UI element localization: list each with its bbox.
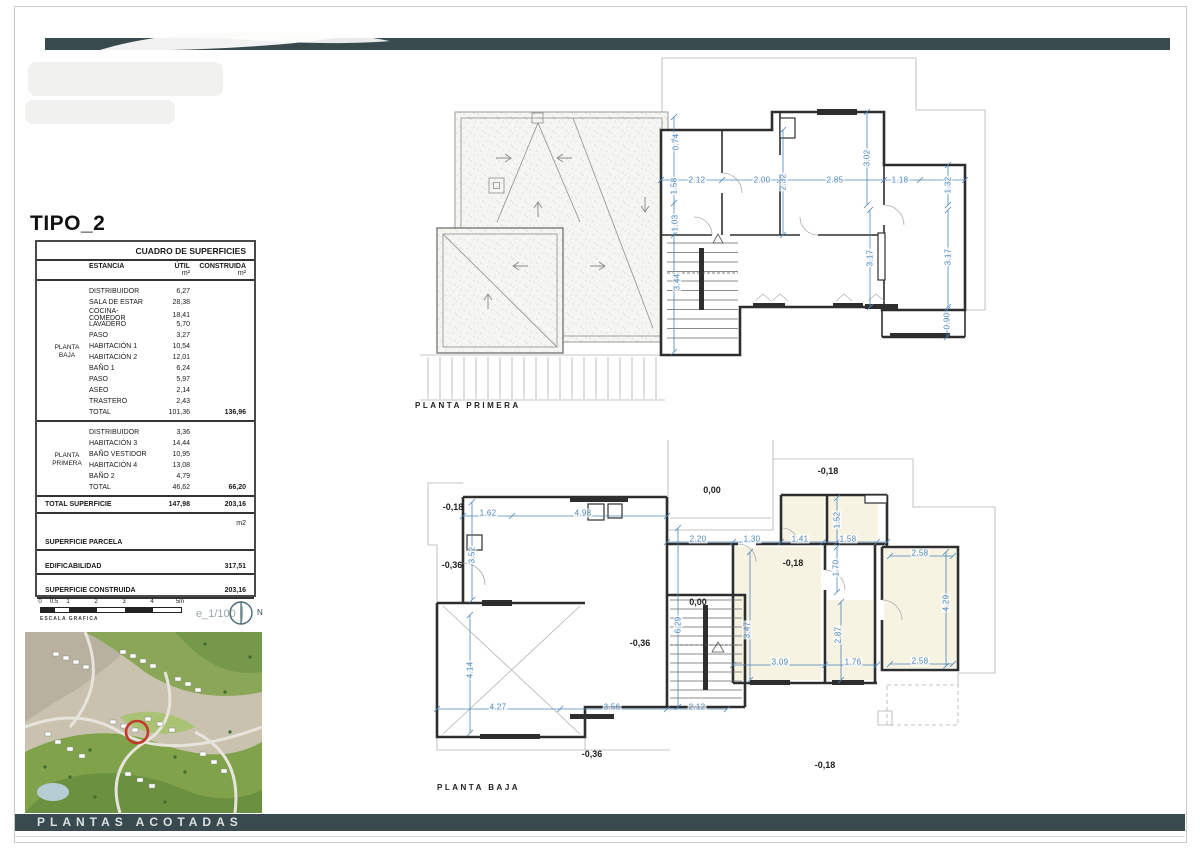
- north-arrow-icon: [228, 600, 254, 626]
- footer-bar: PLANTAS ACOTADAS: [15, 814, 1185, 831]
- footer-title: PLANTAS ACOTADAS: [37, 814, 243, 831]
- dimension-label: 1.03: [671, 214, 680, 233]
- level-label: -0,18: [783, 558, 804, 568]
- compass-icon: N: [228, 600, 272, 628]
- table-total-row: TOTAL46,6266,20: [89, 482, 246, 493]
- total-superficie-label: TOTAL SUPERFICIE: [45, 501, 150, 508]
- table-group: PLANTAPRIMERADISTRIBUIDOR3,36HABITACIÓN …: [37, 422, 254, 497]
- level-label: -0,36: [582, 749, 603, 759]
- dimension-label: 2.58: [911, 657, 930, 666]
- group-name: PLANTAPRIMERA: [45, 452, 89, 468]
- level-label: -0,18: [443, 502, 464, 512]
- dimension-label: 3.47: [743, 621, 752, 640]
- table-row: LAVADERO5,70: [89, 319, 246, 330]
- level-label: -0,18: [818, 466, 839, 476]
- top-accent-bar: [45, 30, 1170, 56]
- site-map-image: [25, 632, 262, 813]
- drawing-sheet: TIPO_2 CUADRO DE SUPERFICIES ESTANCIA ÚT…: [0, 0, 1200, 848]
- level-label: 0,00: [689, 597, 707, 607]
- dimension-label: 2.32: [779, 173, 788, 192]
- total-superficie-row: TOTAL SUPERFICIE 147,98 203,16: [37, 497, 254, 514]
- table-row: PASO3,27: [89, 330, 246, 341]
- dimension-label: 4.27: [489, 703, 508, 712]
- level-label: -0,36: [630, 638, 651, 648]
- dimension-label: 2.20: [689, 535, 708, 544]
- col-util: ÚTIL: [150, 263, 190, 270]
- dimension-label: 1.32: [944, 176, 953, 195]
- table-row: DISTRIBUIDOR6,27: [89, 286, 246, 297]
- dimension-label: 1.58: [670, 177, 679, 196]
- col-estancia: ESTANCIA: [89, 263, 150, 277]
- accent-bar-graphic: [45, 30, 1170, 56]
- scale-tick-label: 0: [38, 599, 41, 605]
- dimension-label: 3.44: [673, 273, 682, 292]
- table-row: SALA DE ESTAR28,38: [89, 297, 246, 308]
- dimension-label: 1.52: [833, 511, 842, 530]
- col-util-unit: m²: [150, 270, 190, 277]
- dimension-label: 1.30: [743, 535, 762, 544]
- surfaces-table-body: PLANTABAJADISTRIBUIDOR6,27SALA DE ESTAR2…: [37, 281, 254, 497]
- dimension-label: 1.70: [832, 559, 841, 578]
- table-title: CUADRO DE SUPERFICIES: [37, 242, 254, 259]
- table-group: PLANTABAJADISTRIBUIDOR6,27SALA DE ESTAR2…: [37, 281, 254, 422]
- primera-annotations: 0.741.581.033.442.122.002.322.853.021.18…: [420, 55, 1000, 415]
- plan-label-primera: PLANTA PRIMERA: [415, 401, 521, 410]
- dimension-label: 2.12: [688, 703, 707, 712]
- dimension-label: 1.58: [839, 535, 858, 544]
- plan-label-baja: PLANTA BAJA: [437, 783, 520, 792]
- table-row: ASEO2,14: [89, 385, 246, 396]
- scale-tick-label: 0.5: [50, 599, 58, 605]
- scale-tick-label: 5m: [176, 599, 184, 605]
- scale-bar-graphic: [40, 607, 182, 613]
- table-row: PASO5,97: [89, 374, 246, 385]
- table-total-row: TOTAL101,36136,96: [89, 407, 246, 418]
- level-label: -0,18: [815, 760, 836, 770]
- table-row: BAÑO 16,24: [89, 363, 246, 374]
- dimension-label: 4.98: [574, 509, 593, 518]
- sheet-title: TIPO_2: [30, 212, 105, 236]
- group-name: PLANTABAJA: [45, 344, 89, 360]
- north-label: N: [257, 608, 263, 617]
- table-row: BAÑO 24,79: [89, 471, 246, 482]
- col-construida-unit: m²: [190, 270, 246, 277]
- scale-tick-label: 4: [150, 599, 153, 605]
- dimension-label: 2.85: [826, 176, 845, 185]
- floor-plan-primera: 0.741.581.033.442.122.002.322.853.021.18…: [420, 55, 1000, 415]
- table-row: HABITACIÓN 413,08: [89, 460, 246, 471]
- dimension-label: 3.52: [468, 546, 477, 565]
- scale-caption: ESCALA GRAFICA: [40, 616, 190, 622]
- table-row: HABITACIÓN 314,44: [89, 438, 246, 449]
- dimension-label: 4.14: [466, 661, 475, 680]
- table-row: HABITACIÓN 110,54: [89, 341, 246, 352]
- dimension-label: 2.58: [911, 549, 930, 558]
- level-label: 0,00: [703, 485, 721, 495]
- scale-tick-label: 1: [66, 599, 69, 605]
- dimension-label: 4.29: [942, 594, 951, 613]
- surfaces-table: CUADRO DE SUPERFICIES ESTANCIA ÚTILm² CO…: [35, 240, 256, 597]
- col-construida: CONSTRUIDA: [190, 263, 246, 270]
- baja-annotations: 1.624.983.522.201.301.411.581.521.702.58…: [420, 440, 1000, 770]
- table-row: DISTRIBUIDOR3,36: [89, 427, 246, 438]
- level-label: -0,36: [442, 560, 463, 570]
- table-row: TRASTERO2,43: [89, 396, 246, 407]
- dimension-label: 2.87: [834, 626, 843, 645]
- table-header: ESTANCIA ÚTILm² CONSTRUIDAm²: [37, 259, 254, 281]
- total-superficie-util: 147,98: [150, 501, 190, 508]
- m2-note: m2: [37, 514, 254, 527]
- footer-underline: [15, 836, 1185, 837]
- scale-bar: 00.512345m ESCALA GRAFICA: [40, 599, 190, 625]
- dimension-label: 3.17: [944, 248, 953, 267]
- dimension-label: 1.18: [891, 176, 910, 185]
- total-superficie-construida: 203,16: [190, 501, 246, 508]
- parcela-row: SUPERFICIE PARCELA: [37, 536, 254, 551]
- dimension-label: 3.17: [866, 249, 875, 268]
- scale-tick-label: 2: [94, 599, 97, 605]
- dimension-label: 3.09: [771, 658, 790, 667]
- table-row: HABITACIÓN 212,01: [89, 352, 246, 363]
- dimension-label: 2.00: [753, 176, 772, 185]
- dimension-label: 2.12: [688, 176, 707, 185]
- floor-plan-baja: 1.624.983.522.201.301.411.581.521.702.58…: [420, 440, 1000, 770]
- edificabilidad-row: EDIFICABILIDAD 317,51: [37, 560, 254, 575]
- dimension-label: 0.74: [672, 133, 681, 152]
- scale-tick-label: 3: [122, 599, 125, 605]
- dimension-label: 6.29: [674, 616, 683, 635]
- table-row: COCINA-COMEDOR18,41: [89, 308, 246, 319]
- scale-tick-labels: 00.512345m: [40, 599, 190, 607]
- dimension-label: 3.02: [863, 149, 872, 168]
- dimension-label: 0.90: [943, 312, 952, 331]
- dimension-label: 1.62: [479, 509, 498, 518]
- dimension-label: 1.76: [844, 658, 863, 667]
- dimension-label: 1.41: [791, 535, 810, 544]
- table-row: BAÑO VESTIDOR10,95: [89, 449, 246, 460]
- superficie-construida-row: SUPERFICIE CONSTRUIDA 203,16: [37, 584, 254, 599]
- dimension-label: 3.56: [603, 703, 622, 712]
